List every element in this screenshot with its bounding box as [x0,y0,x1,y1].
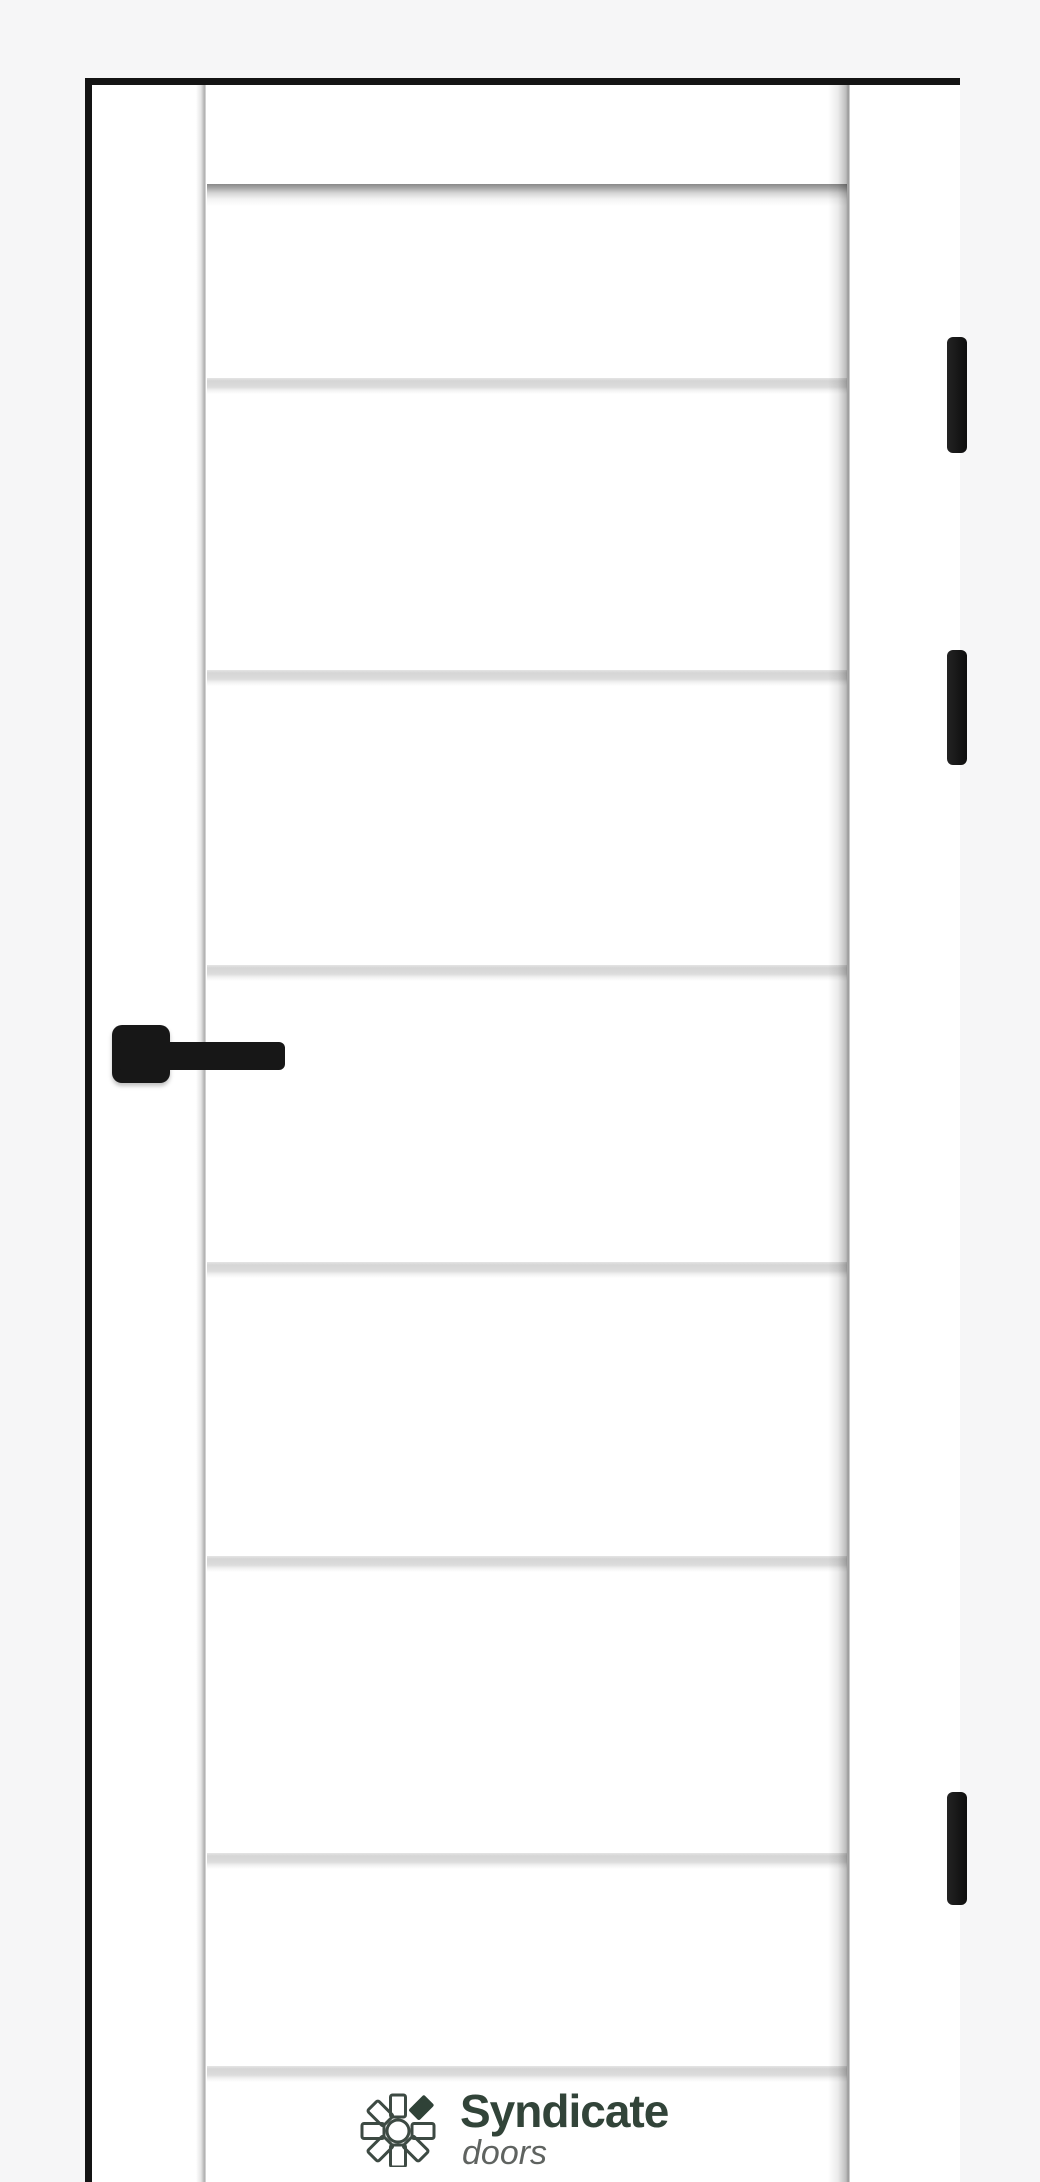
panel-groove [207,2066,847,2082]
brand-name: Syndicate [460,2088,668,2134]
panel-groove [207,378,847,394]
panel-groove [207,965,847,981]
panel-groove [207,670,847,686]
stile-joint-line [196,85,206,2182]
panel-groove [207,184,847,206]
panel-groove [207,1853,847,1869]
door-unit [85,78,960,2182]
hinge [947,337,967,453]
brand-logo: Syndicate doors [360,2088,668,2170]
pinwheel-icon [360,2091,440,2167]
brand-tagline: doors [462,2136,668,2170]
hinge [947,1792,967,1905]
product-image: Syndicate doors [0,0,1040,2182]
door-handle [118,1042,285,1070]
door-left-stile [92,85,203,2182]
panel-groove [207,1262,847,1278]
slab-edge-line [828,85,850,2182]
door-right-jamb [850,85,960,2182]
hinge [947,650,967,765]
panel-groove [207,1556,847,1572]
